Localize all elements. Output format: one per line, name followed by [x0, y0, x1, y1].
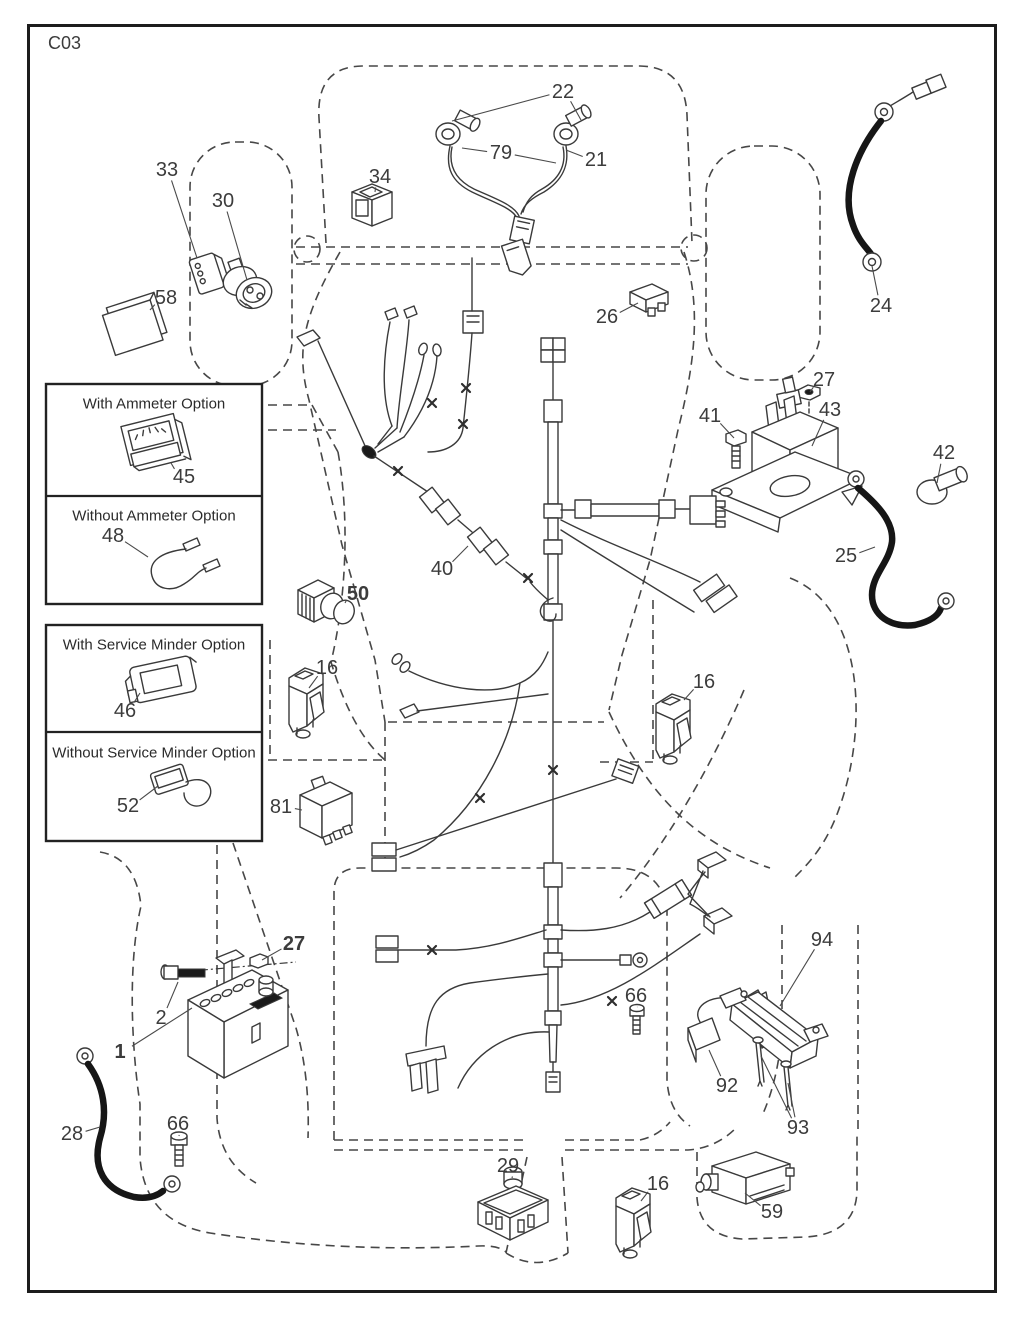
page-code: C03 [48, 33, 81, 53]
fuse-26 [630, 284, 668, 316]
parts-diagram-page: C03 With Ammeter Option Without Amm [0, 0, 1024, 1317]
main-harness [297, 258, 737, 1093]
dash-connector-upper [268, 405, 338, 452]
callout-16: 16 [316, 657, 338, 679]
callout-48: 48 [102, 525, 124, 547]
interlock-switch-16-right [656, 694, 691, 764]
ground-cable-28 [77, 1048, 180, 1198]
callout-41: 41 [699, 405, 721, 427]
callout-92: 92 [716, 1075, 738, 1097]
callout-28: 28 [61, 1123, 83, 1145]
callout-50: 50 [347, 583, 369, 605]
leader-line-22 [452, 95, 549, 121]
callout-42: 42 [933, 442, 955, 464]
without-service-minder-title: Without Service Minder Option [52, 745, 255, 762]
screw-66-left [171, 1132, 187, 1166]
ammeter-option-box: With Ammeter Option Without Ammeter Opti… [46, 384, 262, 604]
headlight-harness [436, 103, 593, 278]
callout-16: 16 [693, 671, 715, 693]
dash-circle-left [294, 236, 320, 262]
module-59 [696, 1152, 794, 1204]
leader-line-33 [172, 180, 197, 258]
leader-line-92 [709, 1050, 721, 1076]
callout-29: 29 [497, 1155, 519, 1177]
callout-58: 58 [155, 287, 177, 309]
callout-66: 66 [167, 1113, 189, 1135]
leader-line-40 [452, 546, 468, 562]
callout-45: 45 [173, 466, 195, 488]
console-right-outline [609, 252, 694, 710]
callout-94: 94 [811, 929, 833, 951]
splice-mark [608, 997, 616, 1005]
console-left-outline [303, 252, 385, 722]
callout-46: 46 [114, 700, 136, 722]
with-ammeter-title: With Ammeter Option [83, 396, 226, 413]
with-service-minder-title: With Service Minder Option [63, 637, 246, 654]
callout-33: 33 [156, 159, 178, 181]
footwell-outline [385, 600, 653, 865]
callout-81: 81 [270, 796, 292, 818]
ammeter-box-border [46, 384, 262, 604]
callout-40: 40 [431, 558, 453, 580]
service-minder-option-box: With Service Minder Option Without Servi… [46, 625, 262, 841]
leader-line-79 [515, 155, 556, 163]
callout-22: 22 [552, 81, 574, 103]
battery-1 [161, 950, 296, 1078]
callout-52: 52 [117, 795, 139, 817]
leader-line-94 [780, 949, 814, 1006]
callout-43: 43 [819, 399, 841, 421]
leader-line-2 [167, 982, 178, 1008]
relay-81 [300, 776, 352, 844]
module-94 [720, 988, 828, 1068]
right-panel-outline [706, 146, 820, 380]
ground-cable-24 [849, 74, 946, 271]
fender-split-2 [334, 1128, 736, 1150]
callout-79: 79 [490, 142, 512, 164]
callout-24: 24 [870, 295, 892, 317]
leader-line-28 [86, 1127, 100, 1131]
diagram-canvas: C03 With Ammeter Option Without Amm [0, 0, 1024, 1317]
splice-mark [394, 467, 402, 475]
callout-30: 30 [212, 190, 234, 212]
callout-21: 21 [585, 149, 607, 171]
splice-mark [462, 384, 470, 392]
splice-mark [428, 399, 436, 407]
bolt-41 [726, 430, 746, 468]
callout-16: 16 [647, 1173, 669, 1195]
callout-25: 25 [835, 545, 857, 567]
callout-66: 66 [625, 985, 647, 1007]
callout-27: 27 [283, 933, 305, 955]
leader-line-34 [375, 187, 376, 192]
screw-66-right [630, 1005, 644, 1035]
leader-line-26 [620, 303, 638, 312]
fender-split-1 [334, 1122, 670, 1140]
splice-mark [476, 794, 484, 802]
callout-26: 26 [596, 306, 618, 328]
without-ammeter-title: Without Ammeter Option [72, 508, 235, 525]
terminal-boot-42 [917, 465, 969, 504]
callout-59: 59 [761, 1201, 783, 1223]
callout-34: 34 [369, 166, 391, 188]
leader-line-21 [566, 150, 583, 157]
callout-1: 1 [114, 1041, 125, 1063]
callout-27: 27 [813, 369, 835, 391]
interlock-switch-16-bottom [616, 1188, 651, 1258]
ignition-switch-30 [219, 258, 276, 313]
right-fender-outline [790, 578, 856, 880]
seat-switch-29 [478, 1167, 548, 1240]
callout-93: 93 [787, 1117, 809, 1139]
leader-line-79 [462, 148, 487, 152]
switch-34 [352, 184, 392, 226]
leader-line-25 [859, 547, 875, 553]
